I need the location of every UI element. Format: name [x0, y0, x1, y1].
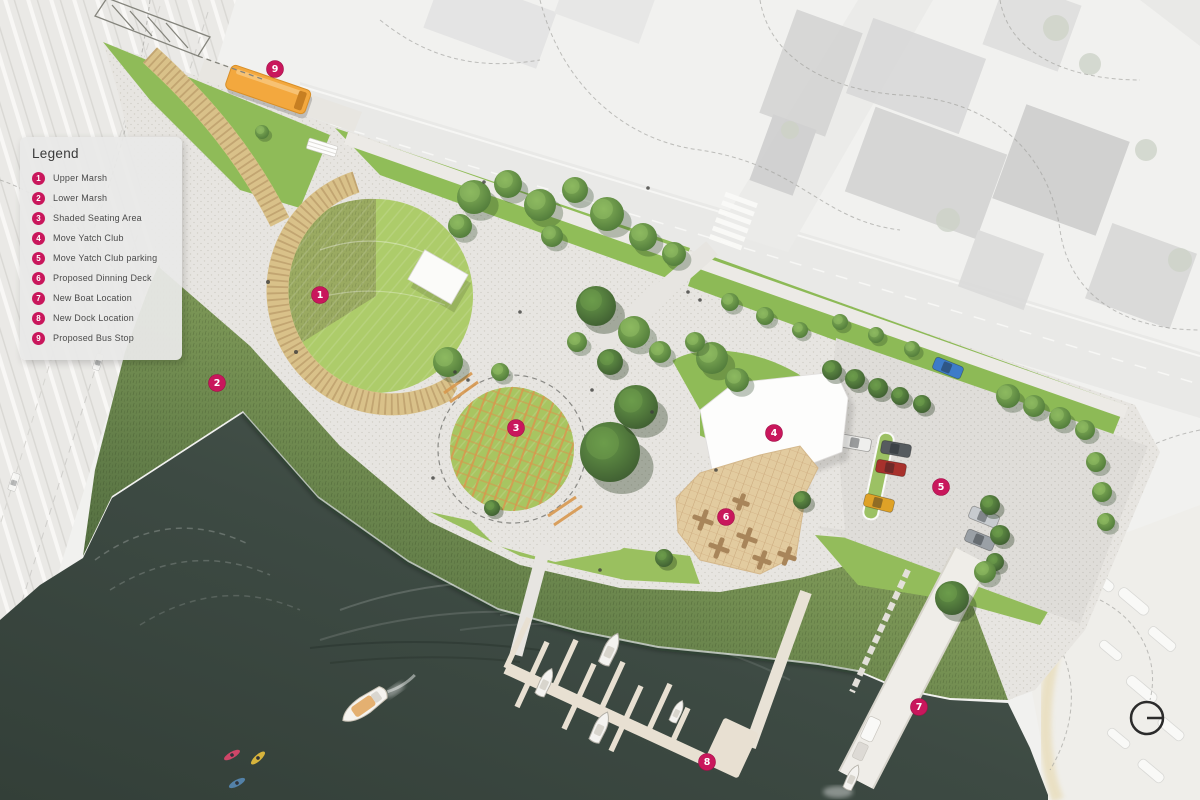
- legend-item: 6Proposed Dinning Deck: [32, 268, 172, 288]
- legend-label: Lower Marsh: [53, 193, 107, 203]
- legend-item: 4Move Yatch Club: [32, 228, 172, 248]
- map-marker-1: 1: [312, 287, 329, 304]
- map-marker-7: 7: [911, 699, 928, 716]
- legend-item: 3Shaded Seating Area: [32, 208, 172, 228]
- legend-label: Upper Marsh: [53, 173, 107, 183]
- map-marker-9: 9: [267, 61, 284, 78]
- legend-badge: 5: [32, 252, 45, 265]
- legend-label: New Dock Location: [53, 313, 134, 323]
- site-plan-page: 123456789 Legend 1Upper Marsh2Lower Mars…: [0, 0, 1200, 800]
- svg-text:9: 9: [272, 64, 279, 75]
- map-marker-3: 3: [508, 420, 525, 437]
- legend-item: 5Move Yatch Club parking: [32, 248, 172, 268]
- legend-label: Move Yatch Club: [53, 233, 124, 243]
- legend-badge: 8: [32, 312, 45, 325]
- legend-badge: 9: [32, 332, 45, 345]
- svg-text:5: 5: [938, 482, 945, 493]
- legend-badge: 4: [32, 232, 45, 245]
- legend-items: 1Upper Marsh2Lower Marsh3Shaded Seating …: [32, 168, 172, 348]
- map-marker-8: 8: [699, 754, 716, 771]
- site-plan-map: 123456789: [0, 0, 1200, 800]
- legend-label: Proposed Dinning Deck: [53, 273, 152, 283]
- map-marker-4: 4: [766, 425, 783, 442]
- svg-text:2: 2: [214, 378, 221, 389]
- svg-text:6: 6: [723, 512, 730, 523]
- svg-text:3: 3: [513, 423, 520, 434]
- legend-label: Shaded Seating Area: [53, 213, 142, 223]
- legend-panel: Legend 1Upper Marsh2Lower Marsh3Shaded S…: [20, 137, 182, 360]
- legend-item: 7New Boat Location: [32, 288, 172, 308]
- legend-item: 1Upper Marsh: [32, 168, 172, 188]
- legend-badge: 1: [32, 172, 45, 185]
- legend-title: Legend: [32, 146, 172, 161]
- legend-label: New Boat Location: [53, 293, 132, 303]
- legend-item: 9Proposed Bus Stop: [32, 328, 172, 348]
- map-marker-2: 2: [209, 375, 226, 392]
- svg-text:1: 1: [317, 290, 324, 301]
- map-marker-5: 5: [933, 479, 950, 496]
- legend-badge: 7: [32, 292, 45, 305]
- legend-badge: 6: [32, 272, 45, 285]
- legend-badge: 2: [32, 192, 45, 205]
- legend-item: 2Lower Marsh: [32, 188, 172, 208]
- legend-item: 8New Dock Location: [32, 308, 172, 328]
- svg-text:7: 7: [916, 702, 923, 713]
- legend-label: Proposed Bus Stop: [53, 333, 134, 343]
- legend-label: Move Yatch Club parking: [53, 253, 157, 263]
- svg-text:8: 8: [704, 757, 711, 768]
- svg-text:4: 4: [771, 428, 778, 439]
- legend-badge: 3: [32, 212, 45, 225]
- map-marker-6: 6: [718, 509, 735, 526]
